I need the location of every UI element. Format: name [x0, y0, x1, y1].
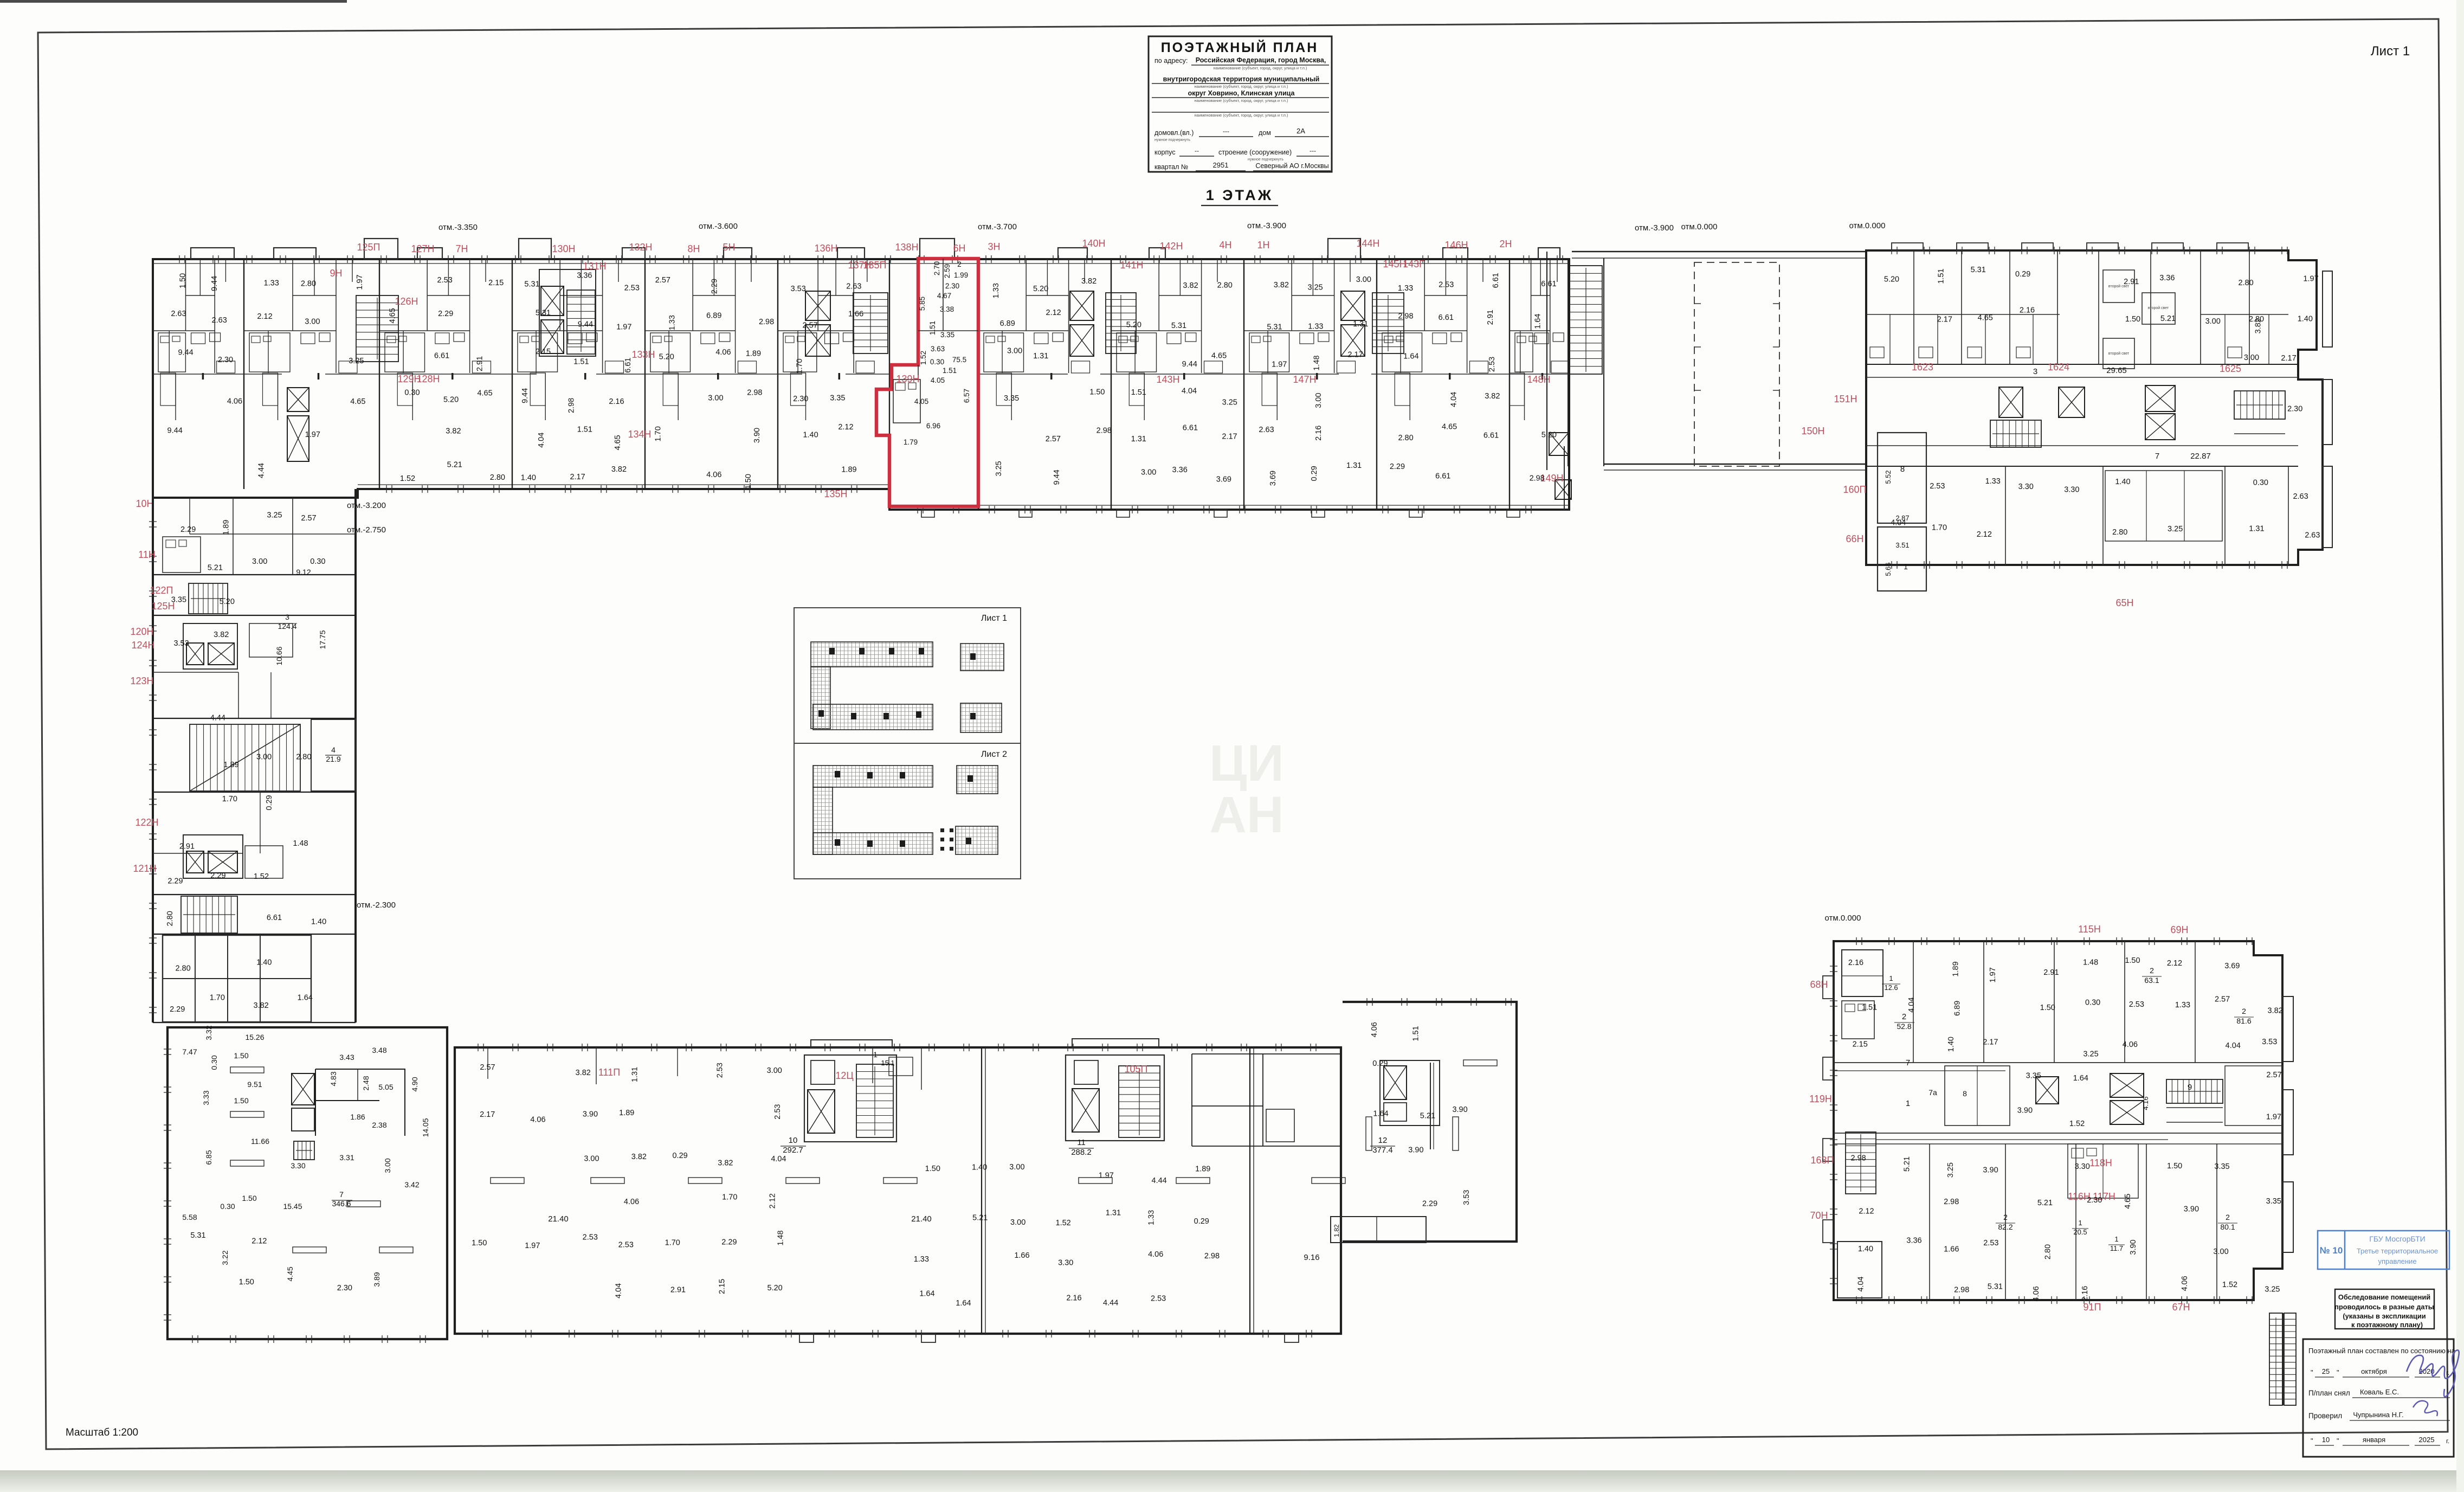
svg-text:9.16: 9.16 [1304, 1253, 1319, 1262]
svg-text:--: -- [1195, 147, 1199, 155]
svg-text:3.00: 3.00 [1010, 1218, 1025, 1227]
svg-text:1.51: 1.51 [1411, 1026, 1420, 1041]
svg-text:1.50: 1.50 [1089, 388, 1105, 397]
svg-text:21.40: 21.40 [911, 1214, 932, 1224]
svg-text:10Н: 10Н [136, 498, 153, 509]
svg-text:Проверил: Проверил [2308, 1412, 2342, 1420]
svg-text:122Н: 122Н [135, 817, 158, 828]
svg-text:3.43: 3.43 [339, 1053, 354, 1062]
svg-text:132Н: 132Н [629, 242, 652, 253]
svg-text:1.33: 1.33 [992, 283, 1001, 298]
svg-text:1.89: 1.89 [1195, 1165, 1210, 1174]
svg-text:2: 2 [957, 260, 962, 268]
svg-text:0.30: 0.30 [220, 1202, 235, 1211]
svg-text:нужное подчеркнуть: нужное подчеркнуть [1248, 158, 1283, 162]
svg-text:4Н: 4Н [1219, 240, 1231, 250]
svg-text:3.51: 3.51 [1895, 541, 1909, 549]
svg-text:20.5: 20.5 [2073, 1228, 2087, 1236]
svg-text:1.97: 1.97 [1099, 1172, 1114, 1180]
svg-text:3.00: 3.00 [1356, 275, 1371, 284]
svg-text:2.29: 2.29 [170, 1005, 185, 1014]
svg-text:2.80: 2.80 [2112, 528, 2127, 537]
svg-text:82.2: 82.2 [1998, 1223, 2013, 1231]
svg-text:отм.0.000: отм.0.000 [1681, 222, 1718, 231]
svg-text:3.25: 3.25 [1222, 398, 1237, 407]
svg-text:2.29: 2.29 [721, 1238, 737, 1247]
svg-text:1.70: 1.70 [210, 993, 225, 1002]
svg-text:2.53: 2.53 [1488, 357, 1497, 372]
svg-text:4.06: 4.06 [715, 348, 731, 357]
svg-text:3.90: 3.90 [2184, 1205, 2199, 1214]
svg-text:Лист 1: Лист 1 [2371, 44, 2410, 59]
svg-text:8: 8 [1900, 465, 1905, 474]
svg-text:1.40: 1.40 [256, 958, 272, 967]
svg-text:1.52: 1.52 [400, 474, 415, 483]
svg-text:1.89: 1.89 [1952, 961, 1960, 976]
svg-text:3.25: 3.25 [2168, 525, 2183, 533]
svg-text:5.20: 5.20 [443, 395, 459, 404]
svg-text:5.20: 5.20 [220, 597, 235, 606]
svg-text:2.80: 2.80 [1398, 434, 1413, 442]
svg-text:2.30: 2.30 [945, 282, 959, 290]
svg-text:12: 12 [1378, 1136, 1388, 1145]
svg-text:2.29: 2.29 [1422, 1200, 1437, 1208]
svg-text:2.17: 2.17 [1937, 316, 1952, 324]
svg-text:2.53: 2.53 [618, 1241, 634, 1250]
svg-text:2.53: 2.53 [716, 1063, 725, 1078]
svg-text:17.75: 17.75 [318, 630, 327, 649]
svg-text:5.31: 5.31 [1971, 266, 1986, 274]
svg-text:1.66: 1.66 [848, 310, 863, 318]
svg-text:15.45: 15.45 [283, 1202, 302, 1211]
svg-text:отм.0.000: отм.0.000 [1825, 914, 1861, 923]
svg-text:377.4: 377.4 [1372, 1146, 1393, 1155]
svg-text:3.90: 3.90 [583, 1110, 598, 1119]
svg-text:1.40: 1.40 [972, 1163, 987, 1172]
svg-text:4.04: 4.04 [1857, 1276, 1866, 1291]
svg-text:1.89: 1.89 [841, 466, 856, 474]
svg-text:5.31: 5.31 [1988, 1283, 2003, 1291]
svg-text:4.04: 4.04 [1907, 998, 1916, 1013]
svg-text:2.57: 2.57 [480, 1063, 495, 1072]
svg-text:2.17: 2.17 [570, 473, 585, 481]
svg-text:1.40: 1.40 [1858, 1245, 1873, 1253]
svg-text:2: 2 [2150, 966, 2154, 975]
svg-text:3.22: 3.22 [221, 1250, 229, 1265]
svg-text:4.44: 4.44 [257, 463, 266, 478]
svg-text:0.30: 0.30 [2085, 999, 2100, 1007]
svg-text:1.40: 1.40 [2115, 478, 2130, 486]
svg-text:4.45: 4.45 [286, 1266, 294, 1281]
svg-text:1: 1 [1889, 974, 1893, 982]
svg-text:118Н: 118Н [2089, 1157, 2112, 1168]
svg-text:4.05: 4.05 [931, 376, 945, 384]
svg-text:3.89: 3.89 [372, 1272, 381, 1287]
svg-text:11: 11 [1077, 1138, 1086, 1147]
svg-text:124Н: 124Н [131, 640, 154, 651]
svg-text:2.12: 2.12 [1977, 530, 1992, 539]
svg-text:6.96: 6.96 [926, 422, 940, 430]
svg-text:1.50: 1.50 [179, 273, 188, 288]
svg-text:1.70: 1.70 [796, 358, 804, 374]
svg-text:1.33: 1.33 [2175, 1001, 2190, 1009]
svg-text:7а: 7а [1928, 1088, 1937, 1097]
svg-text:наименование (субъект, город,: наименование (субъект, город, округ, ули… [1195, 84, 1288, 89]
svg-text:1.31: 1.31 [1106, 1208, 1121, 1217]
svg-text:5.58: 5.58 [182, 1213, 197, 1221]
svg-text:1Н: 1Н [1257, 240, 1269, 250]
svg-text:11.7: 11.7 [2110, 1244, 2123, 1252]
svg-text:отм.0.000: отм.0.000 [1849, 221, 1886, 230]
svg-text:4.65: 4.65 [350, 397, 365, 406]
svg-text:139Н: 139Н [896, 374, 919, 384]
svg-text:5.20: 5.20 [767, 1284, 783, 1292]
svg-text:1.51: 1.51 [943, 366, 957, 375]
svg-text:143Н: 143Н [1156, 374, 1179, 385]
svg-text:1.99: 1.99 [954, 271, 968, 279]
svg-text:наименование (субъект, город,: наименование (субъект, город, округ, ули… [1214, 66, 1307, 70]
svg-text:1.40: 1.40 [311, 918, 326, 927]
svg-text:1.50: 1.50 [234, 1051, 248, 1060]
svg-text:1.50: 1.50 [234, 1096, 248, 1105]
svg-text:1.97: 1.97 [2266, 1112, 2281, 1121]
svg-text:1.70: 1.70 [665, 1238, 680, 1247]
svg-text:52.8: 52.8 [1897, 1022, 1911, 1031]
svg-text:1.70: 1.70 [222, 795, 237, 803]
svg-text:2.80: 2.80 [490, 473, 505, 482]
svg-text:1.33: 1.33 [1147, 1210, 1156, 1225]
svg-text:г.: г. [2446, 1437, 2449, 1445]
svg-text:3Н: 3Н [988, 241, 1000, 252]
svg-text:4.06: 4.06 [530, 1116, 545, 1124]
svg-text:2.91: 2.91 [179, 842, 195, 851]
svg-text:12Ц: 12Ц [835, 1070, 853, 1081]
svg-text:": " [2311, 1368, 2313, 1377]
svg-text:2951: 2951 [1213, 161, 1229, 169]
svg-text:7: 7 [2155, 452, 2159, 461]
svg-text:4.05: 4.05 [914, 397, 928, 406]
svg-text:2.80: 2.80 [1217, 281, 1233, 290]
svg-text:П/план снял: П/план снял [2308, 1389, 2350, 1397]
svg-text:2.17: 2.17 [1222, 433, 1237, 441]
svg-text:4.65: 4.65 [1442, 422, 1457, 431]
svg-text:": " [2337, 1437, 2339, 1445]
svg-text:3.35: 3.35 [2026, 1071, 2041, 1080]
svg-text:0.30: 0.30 [930, 358, 944, 366]
svg-text:2.16: 2.16 [2081, 1286, 2089, 1301]
svg-text:домовл.(вл.): домовл.(вл.) [1154, 129, 1194, 137]
svg-text:3.63: 3.63 [931, 345, 945, 353]
svg-text:4.90: 4.90 [410, 1077, 419, 1091]
svg-text:6.61: 6.61 [267, 914, 282, 922]
svg-text:5.52: 5.52 [1884, 470, 1892, 484]
svg-text:3.00: 3.00 [1009, 1163, 1024, 1172]
svg-text:105П: 105П [1125, 1064, 1148, 1075]
svg-text:1.31: 1.31 [1346, 461, 1362, 470]
svg-text:2.16: 2.16 [1314, 426, 1323, 441]
svg-text:Третье территориальное: Третье территориальное [2357, 1247, 2438, 1255]
svg-text:1.40: 1.40 [1947, 1037, 1956, 1052]
svg-text:9.51: 9.51 [247, 1080, 262, 1089]
svg-text:корпус: корпус [1154, 149, 1176, 156]
svg-text:Российская Федерация, город Мо: Российская Федерация, город Москва, [1196, 56, 1326, 64]
svg-text:4.06: 4.06 [2032, 1286, 2041, 1301]
svg-text:0.29: 0.29 [265, 795, 274, 810]
svg-text:0.30: 0.30 [2253, 479, 2268, 487]
svg-text:1.50: 1.50 [925, 1165, 940, 1173]
svg-text:2.17: 2.17 [1983, 1038, 1998, 1047]
svg-text:3.25: 3.25 [1946, 1162, 1955, 1178]
svg-text:1.33: 1.33 [1985, 477, 2001, 486]
svg-text:127Н: 127Н [411, 243, 434, 254]
svg-text:4.04: 4.04 [771, 1155, 786, 1163]
svg-text:3.00: 3.00 [256, 753, 272, 762]
svg-text:134Н: 134Н [628, 429, 651, 440]
svg-text:6.61: 6.61 [1183, 423, 1198, 432]
svg-text:3.36: 3.36 [1906, 1237, 1921, 1245]
svg-text:Обследование помещений: Обследование помещений [2338, 1293, 2430, 1301]
svg-text:1.97: 1.97 [1989, 967, 1997, 982]
svg-text:1.89: 1.89 [222, 520, 230, 535]
svg-text:1.64: 1.64 [956, 1299, 971, 1308]
svg-text:4.04: 4.04 [614, 1283, 623, 1298]
svg-text:1.33: 1.33 [668, 315, 676, 330]
svg-text:8Н: 8Н [687, 243, 700, 254]
svg-text:1.50: 1.50 [239, 1278, 254, 1287]
svg-text:1.48: 1.48 [293, 839, 308, 848]
svg-text:2.91: 2.91 [1486, 310, 1495, 325]
svg-text:3: 3 [285, 613, 289, 621]
svg-text:1.31: 1.31 [1353, 320, 1368, 329]
svg-text:6.61: 6.61 [624, 357, 633, 372]
svg-text:АН: АН [1209, 786, 1283, 844]
svg-text:3.69: 3.69 [2224, 962, 2240, 970]
svg-text:2.29: 2.29 [180, 525, 196, 534]
svg-text:1.40: 1.40 [521, 473, 536, 482]
svg-text:6.61: 6.61 [1435, 472, 1450, 480]
svg-text:дом: дом [1259, 129, 1271, 137]
svg-text:3.00: 3.00 [2244, 353, 2259, 362]
svg-text:4.44: 4.44 [210, 713, 225, 722]
svg-text:1.50: 1.50 [242, 1194, 256, 1202]
svg-text:2.30: 2.30 [2087, 1196, 2102, 1205]
svg-text:1.66: 1.66 [1014, 1251, 1029, 1260]
svg-text:2.53: 2.53 [1439, 281, 1454, 290]
svg-text:120Н: 120Н [130, 626, 153, 637]
svg-text:66Н: 66Н [1846, 533, 1863, 544]
svg-text:1.51: 1.51 [928, 321, 937, 335]
svg-text:1.64: 1.64 [1534, 314, 1543, 329]
svg-text:2.48: 2.48 [362, 1076, 370, 1090]
svg-text:15.1: 15.1 [881, 1059, 894, 1067]
svg-text:2.59: 2.59 [943, 264, 951, 278]
svg-text:111П: 111П [598, 1067, 620, 1078]
svg-text:2.57: 2.57 [2266, 1071, 2281, 1079]
svg-text:2.29: 2.29 [1390, 462, 1405, 471]
svg-text:4.67: 4.67 [937, 292, 951, 300]
svg-text:отм.-3.350: отм.-3.350 [438, 223, 478, 232]
svg-text:1.50: 1.50 [744, 474, 753, 489]
svg-text:января: января [2363, 1436, 2385, 1444]
svg-text:3.25: 3.25 [267, 511, 282, 519]
svg-text:29.65: 29.65 [2106, 366, 2127, 375]
svg-text:135Н: 135Н [824, 488, 847, 499]
svg-text:5.05: 5.05 [378, 1083, 393, 1091]
svg-text:3.31: 3.31 [339, 1153, 354, 1162]
svg-text:151Н: 151Н [1834, 394, 1857, 404]
svg-text:2.15: 2.15 [1853, 1040, 1868, 1049]
svg-text:5.66: 5.66 [1884, 562, 1892, 576]
svg-text:5.31: 5.31 [1171, 321, 1186, 330]
svg-text:3.90: 3.90 [2017, 1107, 2033, 1115]
svg-text:150Н: 150Н [1801, 426, 1824, 436]
svg-text:9.44: 9.44 [1053, 470, 1061, 485]
svg-text:288.2: 288.2 [1071, 1148, 1092, 1157]
svg-text:2.98: 2.98 [567, 398, 576, 413]
svg-text:округ Ховрино, Клинская улица: округ Ховрино, Клинская улица [1188, 89, 1295, 97]
svg-text:5.20: 5.20 [1033, 285, 1048, 293]
svg-text:второй свет: второй свет [2148, 306, 2169, 310]
svg-text:2.30: 2.30 [793, 395, 808, 403]
svg-text:2.80: 2.80 [2238, 279, 2253, 287]
svg-text:6.61: 6.61 [1492, 273, 1500, 288]
svg-text:3: 3 [2033, 367, 2037, 376]
svg-text:2.98: 2.98 [1204, 1252, 1220, 1261]
svg-text:163П: 163П [1811, 1155, 1834, 1166]
svg-text:1.52: 1.52 [2069, 1120, 2085, 1128]
svg-text:4.04: 4.04 [1182, 387, 1197, 396]
svg-text:6.85: 6.85 [204, 1150, 213, 1165]
svg-text:0.29: 0.29 [2015, 270, 2030, 279]
svg-text:9: 9 [2188, 1083, 2192, 1092]
svg-text:9Н: 9Н [330, 268, 342, 279]
svg-text:1.70: 1.70 [722, 1193, 737, 1202]
svg-text:3.82: 3.82 [446, 427, 461, 435]
svg-text:3.00: 3.00 [1141, 468, 1156, 477]
svg-text:5.21: 5.21 [2160, 314, 2176, 323]
svg-text:2.29: 2.29 [167, 877, 183, 886]
svg-text:10: 10 [789, 1136, 798, 1145]
svg-text:1.64: 1.64 [919, 1289, 934, 1298]
svg-text:3.53: 3.53 [1462, 1190, 1471, 1205]
svg-text:2.57: 2.57 [655, 276, 670, 285]
svg-text:1.50: 1.50 [2125, 956, 2140, 965]
svg-text:6.89: 6.89 [1953, 1001, 1962, 1016]
svg-text:5.21: 5.21 [1903, 1156, 1912, 1172]
svg-text:1.89: 1.89 [746, 349, 761, 358]
svg-text:3.53: 3.53 [791, 285, 806, 293]
svg-text:1.97: 1.97 [356, 274, 364, 290]
svg-text:4.83: 4.83 [329, 1071, 338, 1086]
svg-text:1.50: 1.50 [2167, 1162, 2182, 1171]
svg-text:3.25: 3.25 [349, 357, 364, 365]
svg-text:3.25: 3.25 [2083, 1050, 2098, 1059]
svg-text:1.97: 1.97 [525, 1242, 540, 1250]
svg-text:115Н: 115Н [2078, 924, 2101, 935]
svg-text:2025: 2025 [2419, 1436, 2435, 1444]
svg-text:2.98: 2.98 [1954, 1286, 1969, 1295]
svg-text:69Н: 69Н [2170, 924, 2188, 935]
svg-text:1.52: 1.52 [919, 351, 927, 365]
svg-text:2.53: 2.53 [583, 1233, 598, 1242]
svg-text:130Н: 130Н [552, 243, 575, 254]
svg-text:2.57: 2.57 [301, 514, 316, 523]
svg-text:1.48: 1.48 [2083, 959, 2098, 967]
svg-text:5Н: 5Н [723, 242, 735, 253]
svg-text:3.00: 3.00 [252, 557, 267, 566]
svg-text:4.04: 4.04 [1891, 518, 1906, 527]
svg-text:2.98: 2.98 [759, 318, 774, 326]
svg-text:3.90: 3.90 [1983, 1166, 1998, 1174]
svg-text:1.89: 1.89 [223, 761, 238, 769]
svg-text:2: 2 [2003, 1213, 2008, 1221]
svg-text:2.53: 2.53 [1930, 482, 1945, 491]
svg-text:2.12: 2.12 [1859, 1207, 1874, 1216]
svg-text:3.82: 3.82 [1081, 277, 1096, 286]
svg-text:4.65: 4.65 [1978, 314, 1993, 323]
svg-text:5.31: 5.31 [536, 308, 551, 317]
svg-text:2.91: 2.91 [2043, 968, 2059, 977]
svg-text:2.63: 2.63 [2305, 531, 2320, 539]
svg-text:октября: октября [2361, 1367, 2387, 1375]
svg-text:3.90: 3.90 [1452, 1105, 1467, 1114]
svg-text:1.97: 1.97 [2303, 275, 2318, 284]
svg-text:70Н: 70Н [1810, 1210, 1828, 1221]
svg-text:3.82: 3.82 [2268, 1007, 2283, 1015]
svg-text:2: 2 [1902, 1012, 1906, 1021]
svg-text:3.30: 3.30 [291, 1161, 305, 1170]
svg-text:67Н: 67Н [2172, 1302, 2190, 1313]
svg-text:отм.-2.300: отм.-2.300 [357, 901, 396, 910]
svg-text:3.90: 3.90 [2129, 1239, 2138, 1255]
svg-text:3.90: 3.90 [1408, 1146, 1423, 1155]
svg-text:9.44: 9.44 [178, 349, 193, 357]
svg-text:6.61: 6.61 [1439, 313, 1454, 322]
svg-text:3.36: 3.36 [2159, 274, 2175, 282]
svg-text:Северный АО г.Москвы: Северный АО г.Москвы [1255, 162, 1328, 170]
svg-text:№ 10: № 10 [2320, 1245, 2343, 1256]
svg-text:ПОЭТАЖНЫЙ ПЛАН: ПОЭТАЖНЫЙ ПЛАН [1161, 39, 1319, 55]
svg-text:наименование (субъект, город,: наименование (субъект, город, округ, ули… [1195, 98, 1288, 103]
svg-text:1: 1 [873, 1050, 878, 1059]
svg-text:3.25: 3.25 [1308, 283, 1323, 292]
svg-text:1.33: 1.33 [264, 279, 279, 288]
svg-text:22.87: 22.87 [2190, 452, 2211, 461]
svg-text:2.29: 2.29 [438, 310, 453, 318]
svg-text:3.82: 3.82 [718, 1159, 733, 1168]
svg-text:0.29: 0.29 [1194, 1217, 1209, 1226]
svg-text:проводилось в разные даты: проводилось в разные даты [2334, 1303, 2434, 1311]
svg-text:4.06: 4.06 [1148, 1250, 1163, 1259]
svg-text:2.12: 2.12 [838, 423, 853, 432]
svg-text:6.61: 6.61 [1483, 431, 1499, 440]
svg-text:1.52: 1.52 [2222, 1281, 2237, 1289]
svg-text:3.82: 3.82 [254, 1001, 269, 1010]
svg-text:1.82: 1.82 [1333, 1224, 1340, 1237]
svg-text:1.64: 1.64 [298, 994, 313, 1002]
svg-text:3.30: 3.30 [2064, 485, 2079, 494]
svg-text:1.31: 1.31 [1131, 435, 1146, 443]
svg-text:146Н: 146Н [1444, 240, 1468, 250]
svg-text:0.30: 0.30 [310, 557, 325, 566]
svg-text:нужное подчеркнуть: нужное подчеркнуть [1154, 138, 1190, 142]
svg-text:2.80: 2.80 [166, 911, 175, 926]
svg-text:4.06: 4.06 [2123, 1040, 2138, 1049]
svg-text:2.80: 2.80 [296, 753, 311, 762]
svg-text:75.5: 75.5 [952, 356, 966, 364]
svg-text:0.30: 0.30 [404, 388, 420, 397]
svg-text:2.29: 2.29 [710, 279, 719, 294]
